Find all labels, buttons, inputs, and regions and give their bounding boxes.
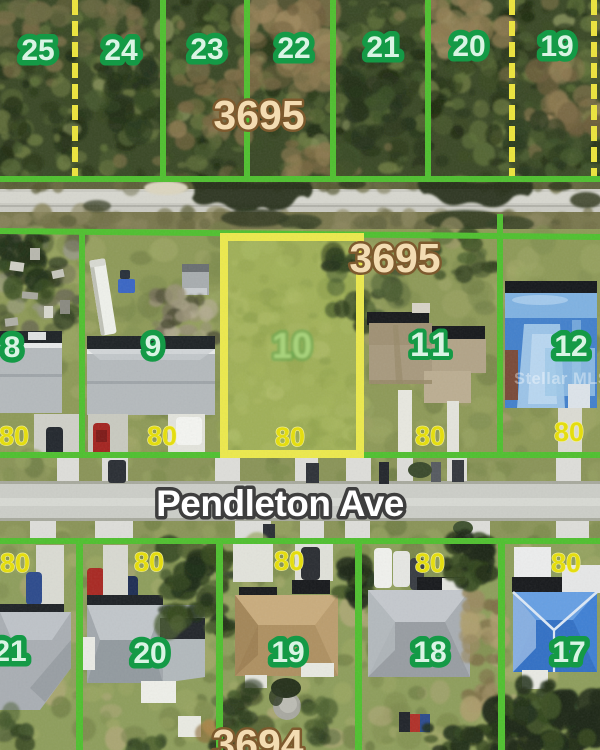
svg-text:23: 23	[190, 33, 223, 66]
svg-text:80: 80	[147, 421, 177, 451]
svg-text:10: 10	[272, 325, 312, 366]
svg-text:11: 11	[410, 326, 454, 364]
svg-text:19: 19	[271, 636, 304, 669]
svg-text:3694: 3694	[212, 721, 303, 750]
svg-text:22: 22	[277, 32, 310, 65]
svg-text:20: 20	[133, 637, 166, 670]
svg-text:80: 80	[134, 547, 164, 577]
svg-text:21: 21	[0, 635, 27, 668]
svg-text:19: 19	[540, 30, 573, 63]
svg-text:80: 80	[274, 546, 304, 576]
svg-text:12: 12	[554, 330, 587, 363]
svg-text:80: 80	[415, 421, 445, 451]
svg-text:80: 80	[554, 417, 584, 447]
svg-text:80: 80	[0, 421, 29, 451]
svg-text:80: 80	[0, 548, 30, 578]
svg-text:80: 80	[415, 548, 445, 578]
svg-text:18: 18	[413, 636, 446, 669]
svg-text:9: 9	[145, 330, 162, 363]
svg-text:3695: 3695	[349, 235, 440, 281]
svg-text:Pendleton Ave: Pendleton Ave	[156, 483, 404, 524]
svg-text:21: 21	[366, 31, 399, 64]
svg-text:17: 17	[552, 636, 585, 669]
svg-text:80: 80	[275, 422, 305, 452]
svg-text:Stellar MLS: Stellar MLS	[514, 370, 600, 388]
svg-text:3695: 3695	[213, 92, 304, 138]
svg-text:24: 24	[104, 34, 138, 67]
svg-text:8: 8	[4, 331, 21, 364]
svg-text:20: 20	[452, 30, 485, 63]
svg-text:25: 25	[21, 34, 54, 67]
svg-text:80: 80	[551, 548, 581, 578]
